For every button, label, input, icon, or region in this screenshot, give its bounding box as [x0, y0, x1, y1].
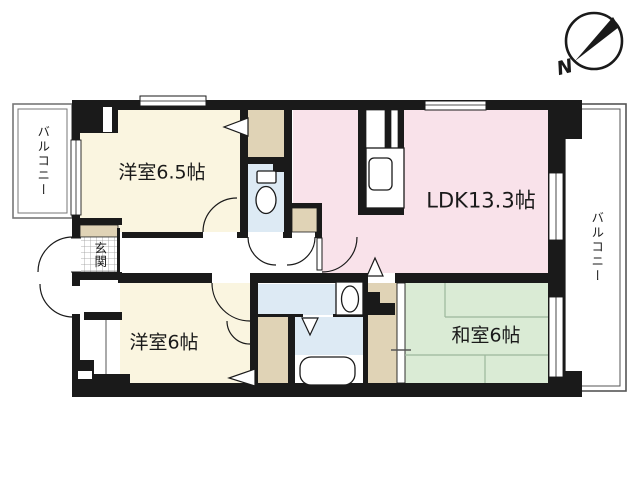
window-left-balcony	[71, 140, 81, 215]
label-ldk: LDK13.3帖	[426, 191, 535, 212]
kitchen-sink-icon	[366, 148, 404, 208]
hall-closet-door-arc	[287, 237, 315, 265]
washroom-floor	[258, 284, 336, 315]
label-entrance: 玄関	[93, 242, 106, 269]
window-right-japanese	[549, 297, 563, 377]
label-room-west2: 洋室6帖	[129, 334, 198, 353]
label-balcony-right: バルコニー	[590, 211, 603, 284]
toilet-icon	[256, 171, 276, 214]
floorplan: 洋室6.5帖 LDK13.3帖 洋室6帖 和室6帖 玄関 バルコニー バルコニー…	[0, 0, 640, 480]
storage-door-arc	[40, 284, 73, 317]
window-top-ldk	[425, 101, 486, 110]
floorplan-drawing	[0, 0, 640, 480]
window-right-ldk	[549, 173, 563, 240]
front-door-arc	[38, 237, 73, 272]
closet-above-toilet	[248, 110, 284, 157]
compass-icon	[566, 13, 622, 69]
ldk-door-leaf	[317, 238, 322, 270]
window-top-west-room	[140, 96, 206, 106]
entry-alcove	[80, 280, 118, 312]
label-room-west1: 洋室6.5帖	[118, 164, 205, 183]
label-room-japanese: 和室6帖	[451, 327, 520, 346]
hall-closet	[292, 208, 317, 232]
closet-west-room	[258, 317, 288, 383]
label-balcony-left: バルコニー	[36, 125, 49, 198]
toilet-door-arc	[248, 237, 276, 265]
washbasin-icon	[336, 282, 363, 315]
bathtub-icon	[300, 357, 355, 385]
shoe-cabinet	[80, 225, 118, 237]
